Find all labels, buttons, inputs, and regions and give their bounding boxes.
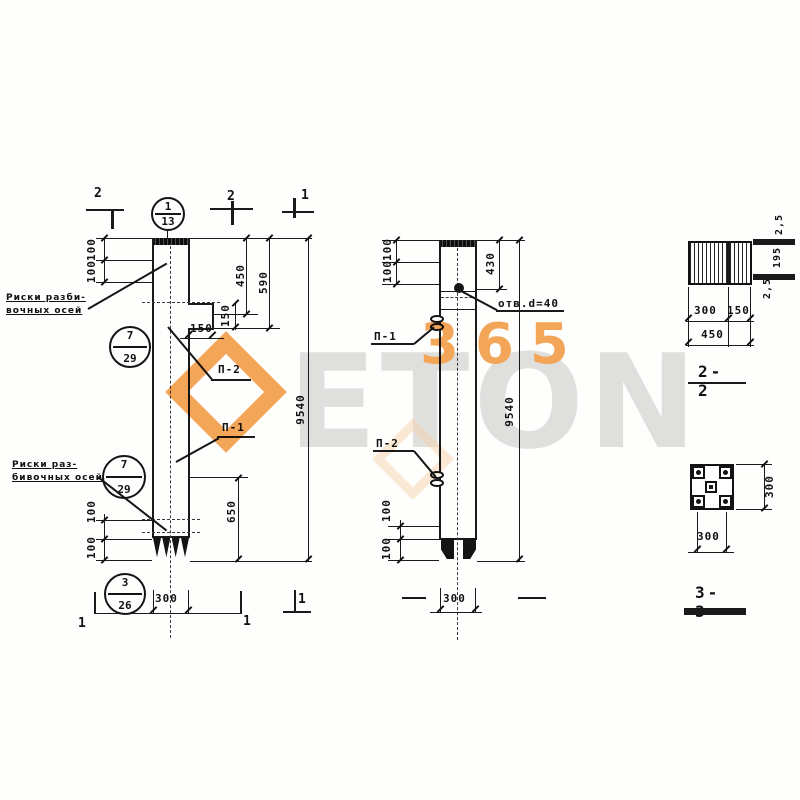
dim-150-vert: 150 <box>219 304 232 327</box>
node-callout-3: 7 29 <box>102 455 146 499</box>
loop-label: П-2 <box>376 437 399 450</box>
section-body-hatched <box>688 241 752 285</box>
dim-100: 100 <box>85 500 98 523</box>
dim-total-9540: 9540 <box>294 394 307 425</box>
column-top-hatch <box>152 238 190 245</box>
cut-line <box>282 211 314 213</box>
line <box>496 310 564 312</box>
section-title: 2-2 <box>698 362 723 400</box>
line <box>475 240 477 540</box>
line <box>371 343 414 345</box>
edge-plate <box>753 274 795 280</box>
dim-150-horiz: 150 <box>190 322 213 335</box>
drawing-sheet: 100 100 100 100 450 590 150 150 <box>0 0 800 800</box>
tooth <box>153 538 161 558</box>
dim-width-300: 300 <box>443 592 466 605</box>
line <box>441 291 477 292</box>
cut-line <box>293 198 296 218</box>
dim-total-9540: 9540 <box>503 396 516 427</box>
ext-line <box>477 289 507 290</box>
divider <box>727 243 730 283</box>
lifting-loop <box>430 315 444 323</box>
watermark-365: 365 <box>420 312 585 377</box>
cut-line <box>86 209 124 211</box>
lifting-loop <box>430 479 444 487</box>
node-callout-1: 1 13 <box>151 197 185 231</box>
dim-line <box>686 321 754 322</box>
dim-300: 300 <box>694 304 717 317</box>
dim-edge: 2,5 <box>762 278 773 299</box>
dim-450: 450 <box>701 328 724 341</box>
pile-foot <box>463 538 476 559</box>
cut-line <box>294 590 296 612</box>
leader <box>413 450 436 477</box>
dim-line-total <box>308 238 309 562</box>
line <box>152 238 154 538</box>
dim-line <box>238 478 239 562</box>
line <box>373 450 414 452</box>
ext-line <box>736 464 772 465</box>
edge-plate <box>753 239 795 245</box>
line <box>188 328 190 538</box>
axes-note-top: Риски разби- <box>6 293 86 303</box>
loop-label: П-2 <box>218 363 241 376</box>
line <box>439 240 441 540</box>
ext-line <box>388 560 439 561</box>
centerline <box>170 246 171 638</box>
loop-label: П-1 <box>374 330 397 343</box>
column-top-hatch <box>439 240 477 247</box>
dim-100: 100 <box>85 536 98 559</box>
dim-100: 100 <box>85 260 98 283</box>
title-underline <box>684 608 746 615</box>
cut-mark-2: 2 <box>94 186 102 201</box>
line <box>188 238 190 305</box>
center-bar-core <box>709 485 713 489</box>
leader <box>413 327 434 345</box>
rebar-corner <box>692 466 705 479</box>
dim-100: 100 <box>380 499 393 522</box>
ext-line <box>190 561 312 562</box>
axes-note-bottom: Риски раз- <box>12 460 77 470</box>
rebar-dot <box>696 470 701 475</box>
leader <box>176 437 220 463</box>
ext-line <box>382 284 439 285</box>
cut-mark-1: 1 <box>78 616 86 631</box>
cut-line <box>402 597 426 599</box>
dim-width-300: 300 <box>697 530 720 543</box>
cut-line <box>283 611 311 613</box>
cut-mark-1: 1 <box>243 614 251 629</box>
watermark-diamond-logo <box>165 331 287 453</box>
cut-line <box>240 591 242 613</box>
axes-note-top: вочных осей <box>6 306 82 316</box>
hole-label: отв.d=40 <box>498 297 559 310</box>
pile-foot <box>441 538 454 559</box>
node-callout-4: 3 26 <box>104 573 146 615</box>
cut-line <box>518 597 546 599</box>
divider <box>724 243 726 283</box>
cut-mark-1: 1 <box>298 592 306 607</box>
dim-100: 100 <box>381 260 394 283</box>
dim-100: 100 <box>381 238 394 261</box>
section-title: 3-3 <box>695 583 720 621</box>
dim-edge: 2,5 <box>774 214 785 235</box>
rebar-corner <box>719 495 732 508</box>
tooth <box>172 538 180 558</box>
dim-line-total <box>519 240 520 562</box>
axes-note-bottom: бивочных осей <box>12 473 103 483</box>
ext-line <box>190 238 312 239</box>
dim-edge: 195 <box>772 247 783 268</box>
line <box>441 309 477 310</box>
centerline <box>457 248 458 640</box>
line <box>211 379 251 381</box>
dim-width-300: 300 <box>155 592 178 605</box>
watermark: ETON 365 <box>0 0 800 800</box>
pile-tip-teeth <box>153 538 189 558</box>
cut-line <box>94 592 96 614</box>
rebar-dot <box>696 499 701 504</box>
cut-line <box>231 201 234 225</box>
line <box>188 303 214 305</box>
rebar-dot <box>723 499 728 504</box>
watermark-text: ETON <box>288 326 701 478</box>
dim-450: 450 <box>234 264 247 287</box>
ext-line <box>388 539 439 540</box>
dim-650: 650 <box>225 500 238 523</box>
line <box>217 436 255 438</box>
dim-100: 100 <box>85 238 98 261</box>
tooth <box>181 538 189 558</box>
dim-line <box>686 345 754 346</box>
title-underline <box>688 382 746 384</box>
leader <box>461 290 498 311</box>
watermark-diamond-faint <box>372 418 454 500</box>
node-callout-2: 7 29 <box>109 326 151 368</box>
rebar-dot <box>723 470 728 475</box>
cut-mark-1: 1 <box>301 188 309 203</box>
dim-100: 100 <box>380 537 393 560</box>
loop-label: П-1 <box>222 421 245 434</box>
dim-430: 430 <box>484 252 497 275</box>
cut-line <box>111 211 114 229</box>
ext-line <box>388 526 439 527</box>
axis-mark-dashed <box>142 532 200 533</box>
dim-line <box>499 240 500 290</box>
ext-line <box>736 509 772 510</box>
dim-height-300: 300 <box>763 475 776 498</box>
rebar-corner <box>719 466 732 479</box>
dim-590: 590 <box>257 271 270 294</box>
axis-mark-dashed <box>142 302 220 303</box>
rebar-corner <box>692 495 705 508</box>
